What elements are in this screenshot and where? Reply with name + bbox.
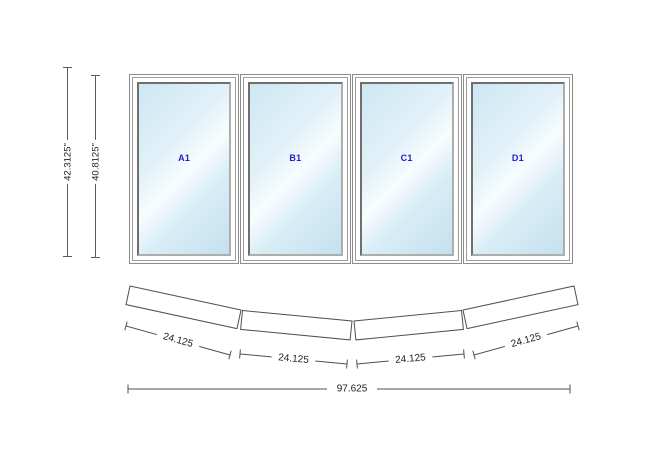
plan-dim-3: 24.125 — [357, 350, 465, 369]
plan-dim-overall-width: 97.625 — [128, 383, 570, 396]
panel-frame: D1 — [466, 77, 570, 261]
panel-frame: B1 — [243, 77, 347, 261]
overall-width-label: 97.625 — [337, 384, 368, 395]
elevation-panel-b1: B1 — [240, 74, 350, 264]
window-shop-drawing: A1 B1 C1 D1 — [0, 0, 664, 451]
dimension-tick — [63, 256, 72, 257]
glass-a1: A1 — [137, 82, 231, 256]
plan-panel-d1 — [463, 286, 578, 329]
panel-label-c1: C1 — [401, 153, 413, 163]
plan-panel-a1 — [126, 286, 241, 329]
panel-label-a1: A1 — [178, 153, 190, 163]
elevation-view: A1 B1 C1 D1 — [129, 74, 573, 264]
glass-b1: B1 — [248, 82, 342, 256]
plan-panel-c1 — [354, 311, 463, 340]
panel-frame: C1 — [355, 77, 459, 261]
panel-label-d1: D1 — [512, 153, 524, 163]
elevation-panel-a1: A1 — [129, 74, 239, 264]
plan-dim-4: 24.125 — [473, 322, 579, 360]
panel-frame: A1 — [132, 77, 236, 261]
frame-height-label: 40.8125" — [90, 140, 103, 184]
glass-c1: C1 — [360, 82, 454, 256]
plan-dim-1-label: 24.125 — [162, 331, 195, 350]
glass-d1: D1 — [471, 82, 565, 256]
panel-label-b1: B1 — [289, 153, 301, 163]
plan-panel-b1 — [241, 311, 352, 340]
plan-dim-1: 24.125 — [125, 322, 231, 360]
plan-view: 24.125 24.125 24.125 — [108, 268, 592, 400]
overall-height-label: 42.3125" — [62, 140, 75, 184]
plan-dim-4-label: 24.125 — [510, 331, 543, 350]
elevation-panel-c1: C1 — [352, 74, 462, 264]
elevation-panel-d1: D1 — [463, 74, 573, 264]
dimension-tick — [63, 67, 72, 68]
dimension-tick — [91, 257, 100, 258]
dimension-tick — [91, 75, 100, 76]
plan-dim-2: 24.125 — [240, 350, 348, 369]
